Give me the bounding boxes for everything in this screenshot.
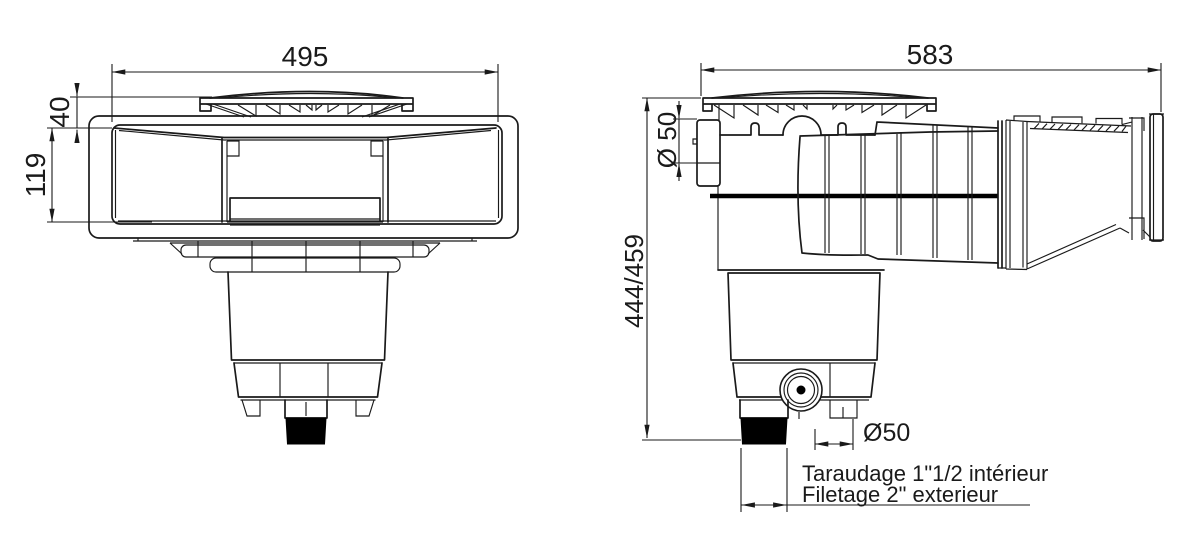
- front-outlet: [286, 418, 326, 444]
- skimmer-technical-drawing: 495 40 119 583 Ø 50 444/459 Ø50 Taraudag…: [0, 0, 1200, 544]
- drain-plug-center: [797, 386, 805, 394]
- dim-front-mouth-height: 119: [20, 153, 51, 198]
- side-outlet: [741, 418, 787, 444]
- dim-side-outlet-diameter: Ø50: [863, 419, 910, 447]
- dim-side-pipe-diameter: Ø 50: [652, 112, 682, 168]
- front-view: [89, 92, 518, 445]
- note-thread-exterior: Filetage 2" exterieur: [802, 482, 998, 507]
- dim-front-cover-offset: 40: [44, 96, 75, 127]
- dim-front-width: 495: [282, 41, 329, 72]
- dimension-annotations: 495 40 119 583 Ø 50 444/459 Ø50 Taraudag…: [20, 39, 1161, 512]
- side-view: [693, 92, 1164, 445]
- dim-side-length: 583: [907, 39, 954, 70]
- technical-drawing-page: 495 40 119 583 Ø 50 444/459 Ø50 Taraudag…: [0, 0, 1200, 544]
- dim-side-overall-height: 444/459: [619, 234, 649, 328]
